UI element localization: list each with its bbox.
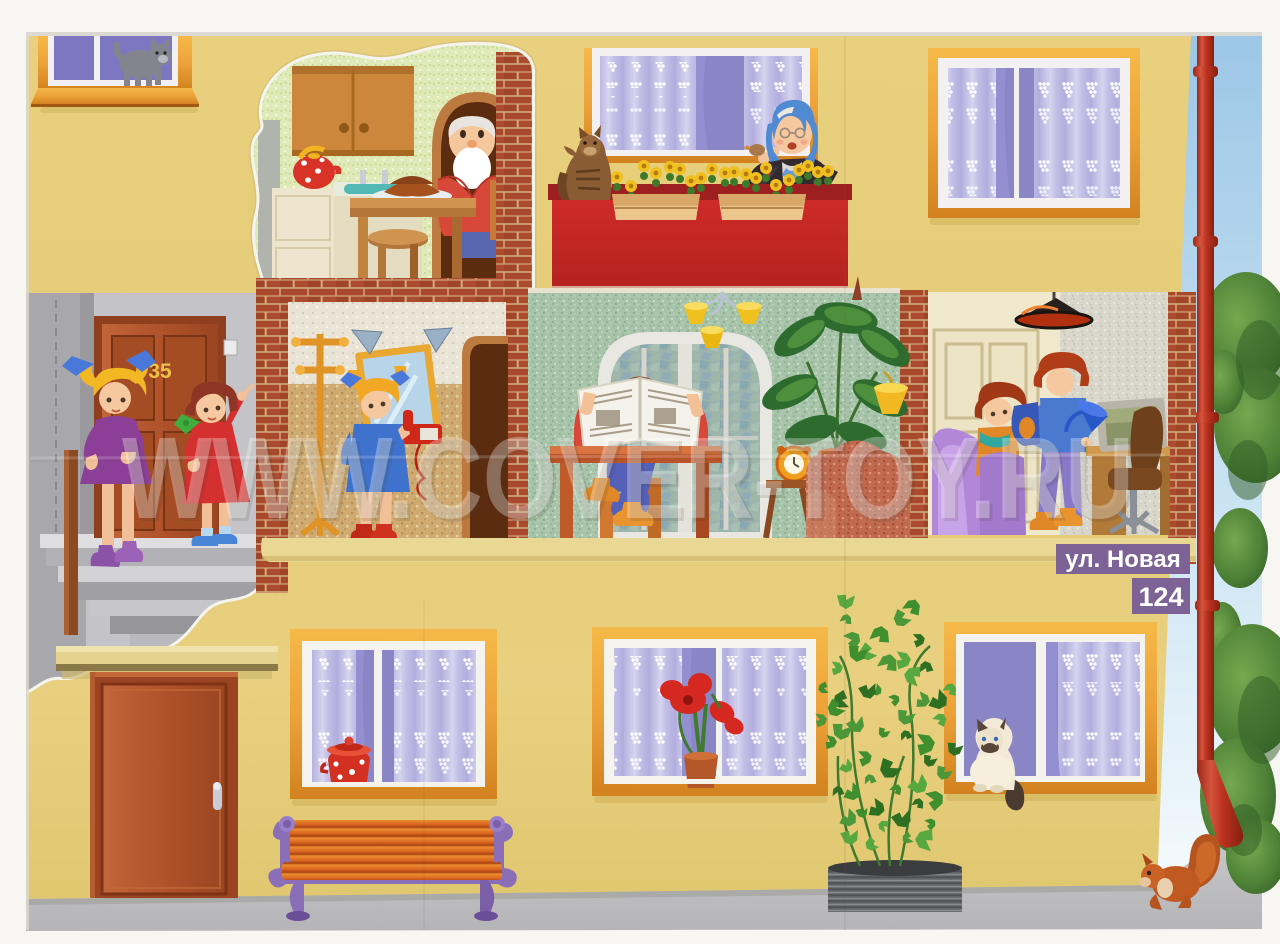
svg-text:WWW.COVER-TOY.RU: WWW.COVER-TOY.RU: [122, 413, 1134, 543]
svg-text:ул. Новая: ул. Новая: [1065, 546, 1180, 573]
svg-text:124: 124: [1138, 582, 1183, 612]
